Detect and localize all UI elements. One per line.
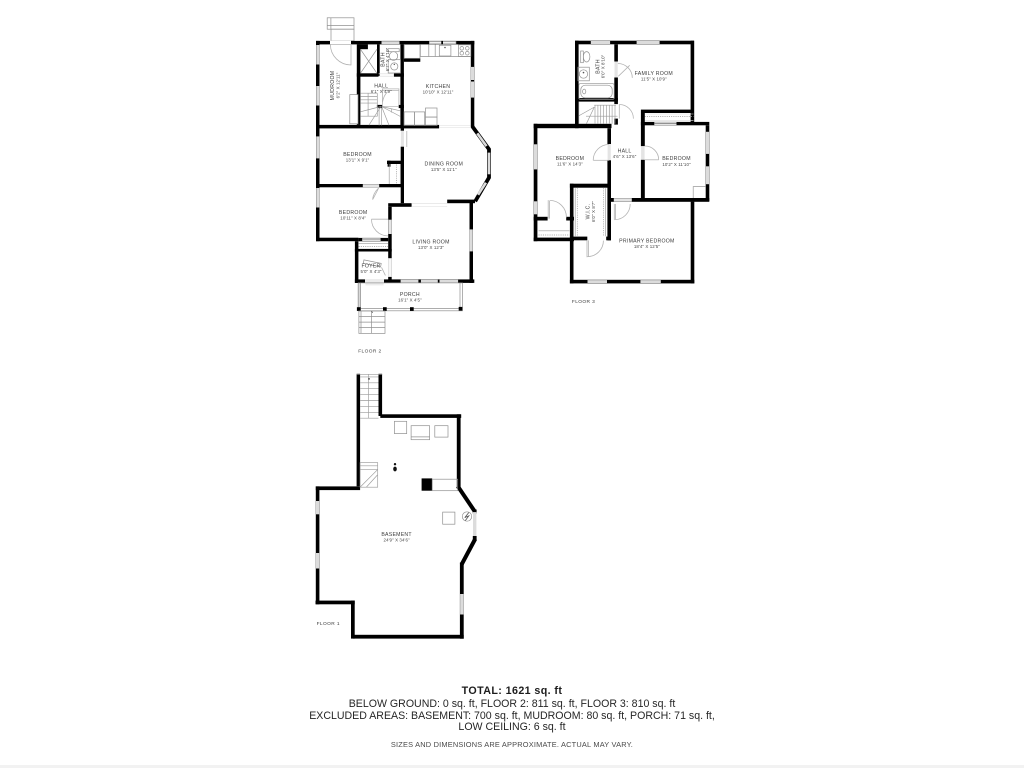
- svg-text:6'1" X 4'9": 6'1" X 4'9": [371, 89, 392, 94]
- svg-text:6'0" X 8'10": 6'0" X 8'10": [601, 54, 606, 78]
- svg-text:16'1" X 4'5": 16'1" X 4'5": [398, 298, 422, 303]
- svg-text:6'7" X 4'10": 6'7" X 4'10": [385, 47, 390, 71]
- svg-text:11'6" X 14'3": 11'6" X 14'3": [557, 162, 583, 167]
- svg-text:5'0" X 4'3": 5'0" X 4'3": [360, 269, 381, 274]
- svg-text:6'0" X 8'7": 6'0" X 8'7": [591, 201, 596, 222]
- svg-text:13'1" X 9'1": 13'1" X 9'1": [346, 157, 370, 162]
- svg-text:FLOOR 3: FLOOR 3: [572, 299, 595, 305]
- svg-text:FLOOR 2: FLOOR 2: [358, 349, 381, 355]
- svg-text:18'4" X 12'5": 18'4" X 12'5": [634, 244, 660, 249]
- svg-text:13'5" X 11'1": 13'5" X 11'1": [431, 167, 457, 172]
- svg-text:4'6" X 13'6": 4'6" X 13'6": [613, 154, 637, 159]
- svg-text:10'11" X 8'4": 10'11" X 8'4": [340, 215, 366, 220]
- svg-text:FLOOR 1: FLOOR 1: [317, 621, 340, 627]
- svg-text:10'10" X 12'11": 10'10" X 12'11": [423, 90, 454, 95]
- svg-text:6'2" X 12'11": 6'2" X 12'11": [336, 72, 341, 98]
- svg-text:11'5" X 10'9": 11'5" X 10'9": [641, 77, 667, 82]
- svg-text:24'9" X 34'6": 24'9" X 34'6": [384, 538, 410, 543]
- svg-text:10'2" X 11'10": 10'2" X 11'10": [662, 162, 691, 167]
- svg-text:13'0" X 12'3": 13'0" X 12'3": [418, 245, 444, 250]
